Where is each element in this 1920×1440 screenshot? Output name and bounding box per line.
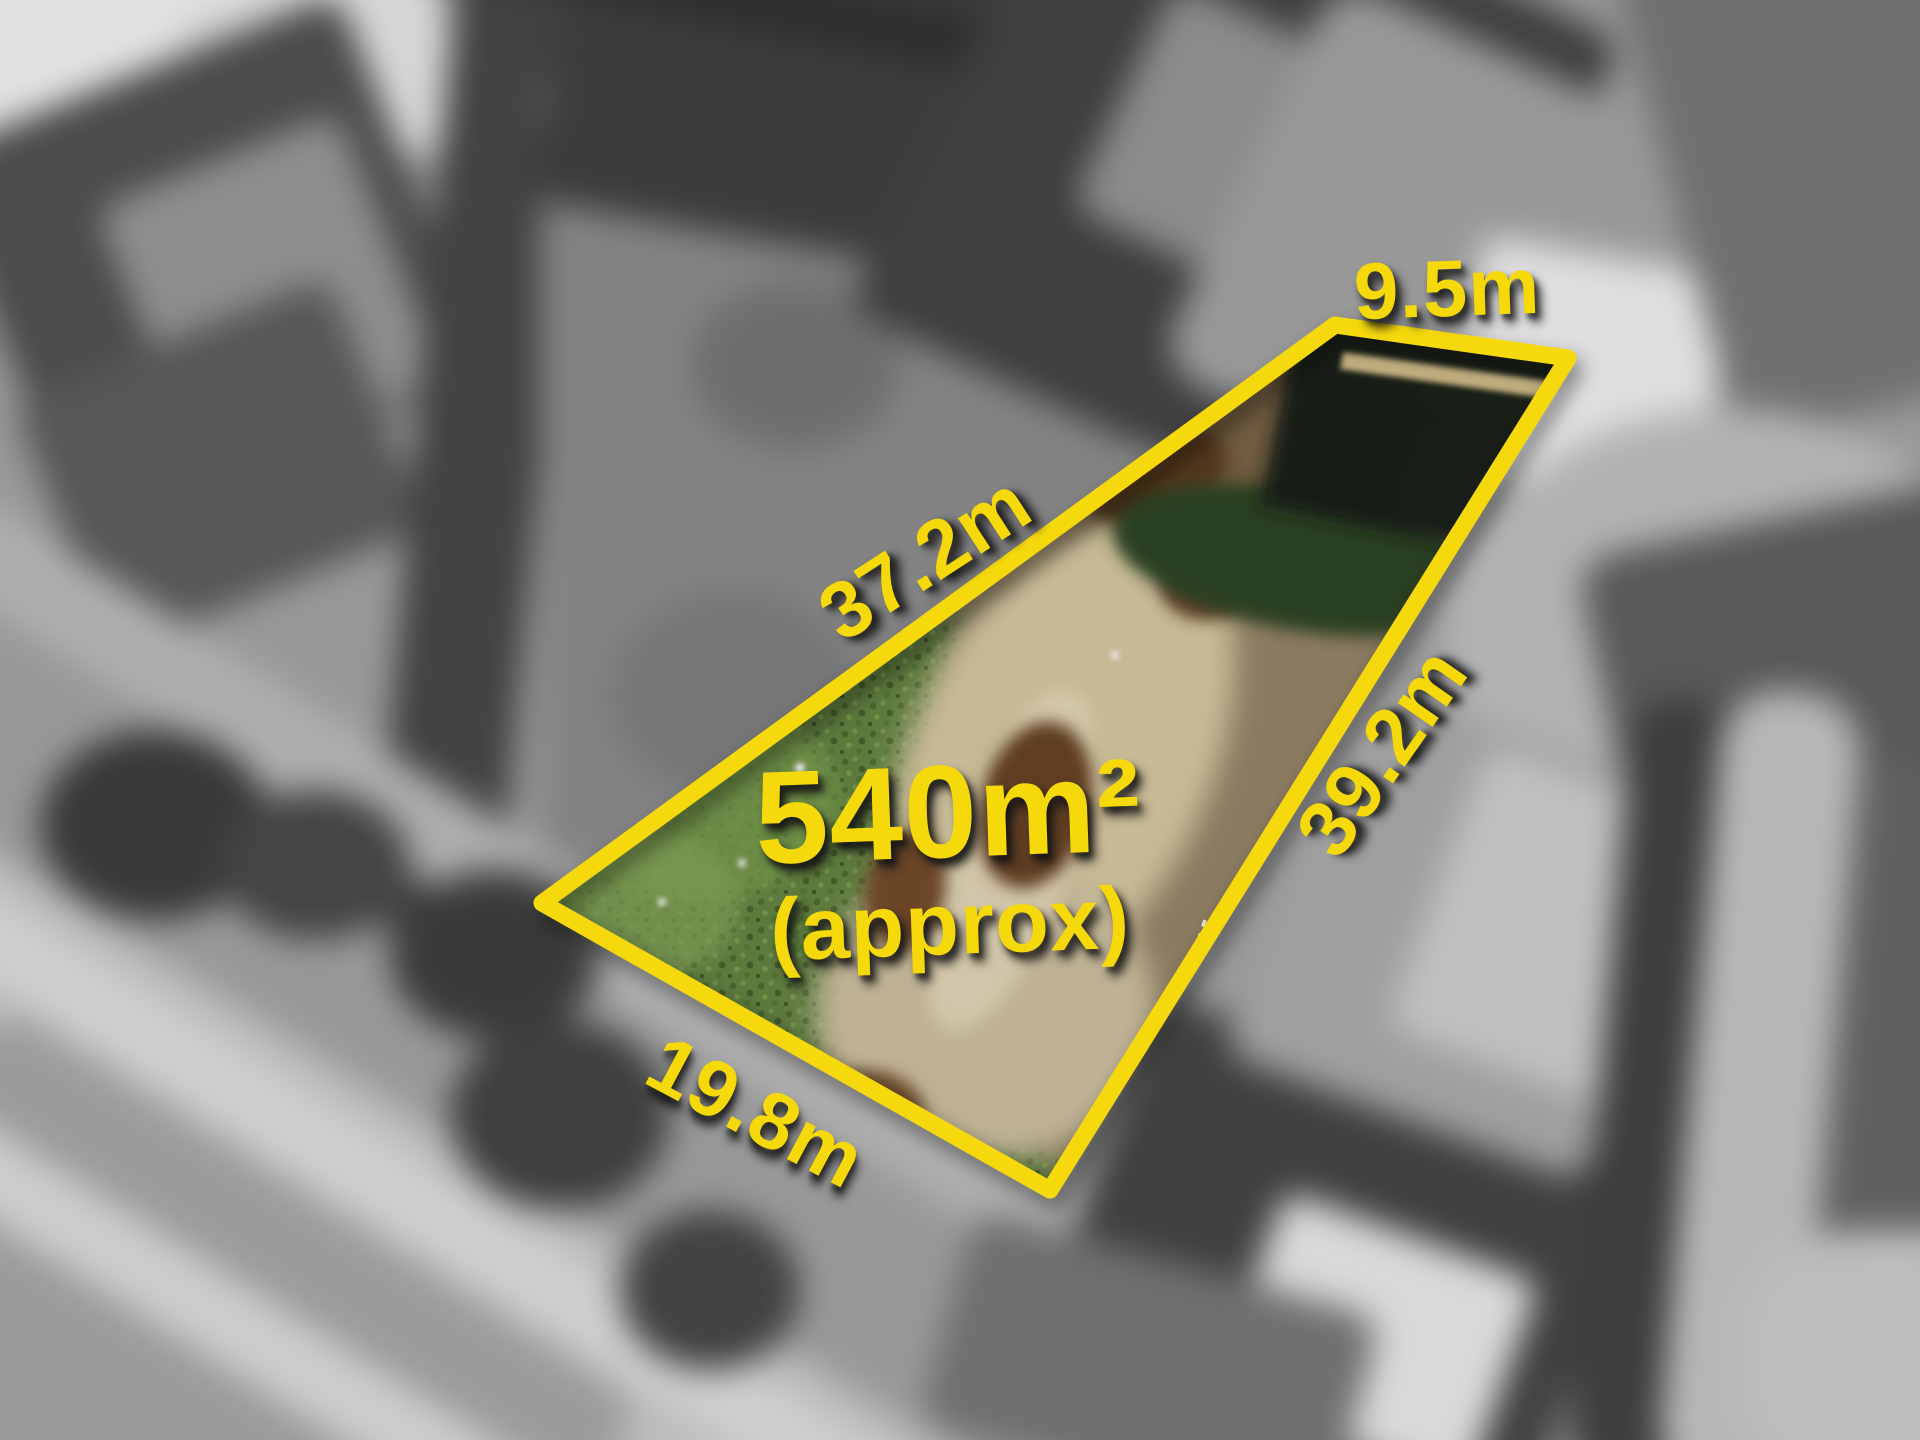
lot-highlight-overlay bbox=[0, 0, 1920, 1440]
area-value-label: 540m² bbox=[753, 739, 1144, 884]
area-qualifier-label: (approx) bbox=[769, 874, 1132, 975]
aerial-lot-photo: 9.5m 37.2m 39.2m 19.8m 540m² (approx) bbox=[0, 0, 1920, 1440]
dimension-label-rear: 9.5m bbox=[1352, 246, 1541, 332]
